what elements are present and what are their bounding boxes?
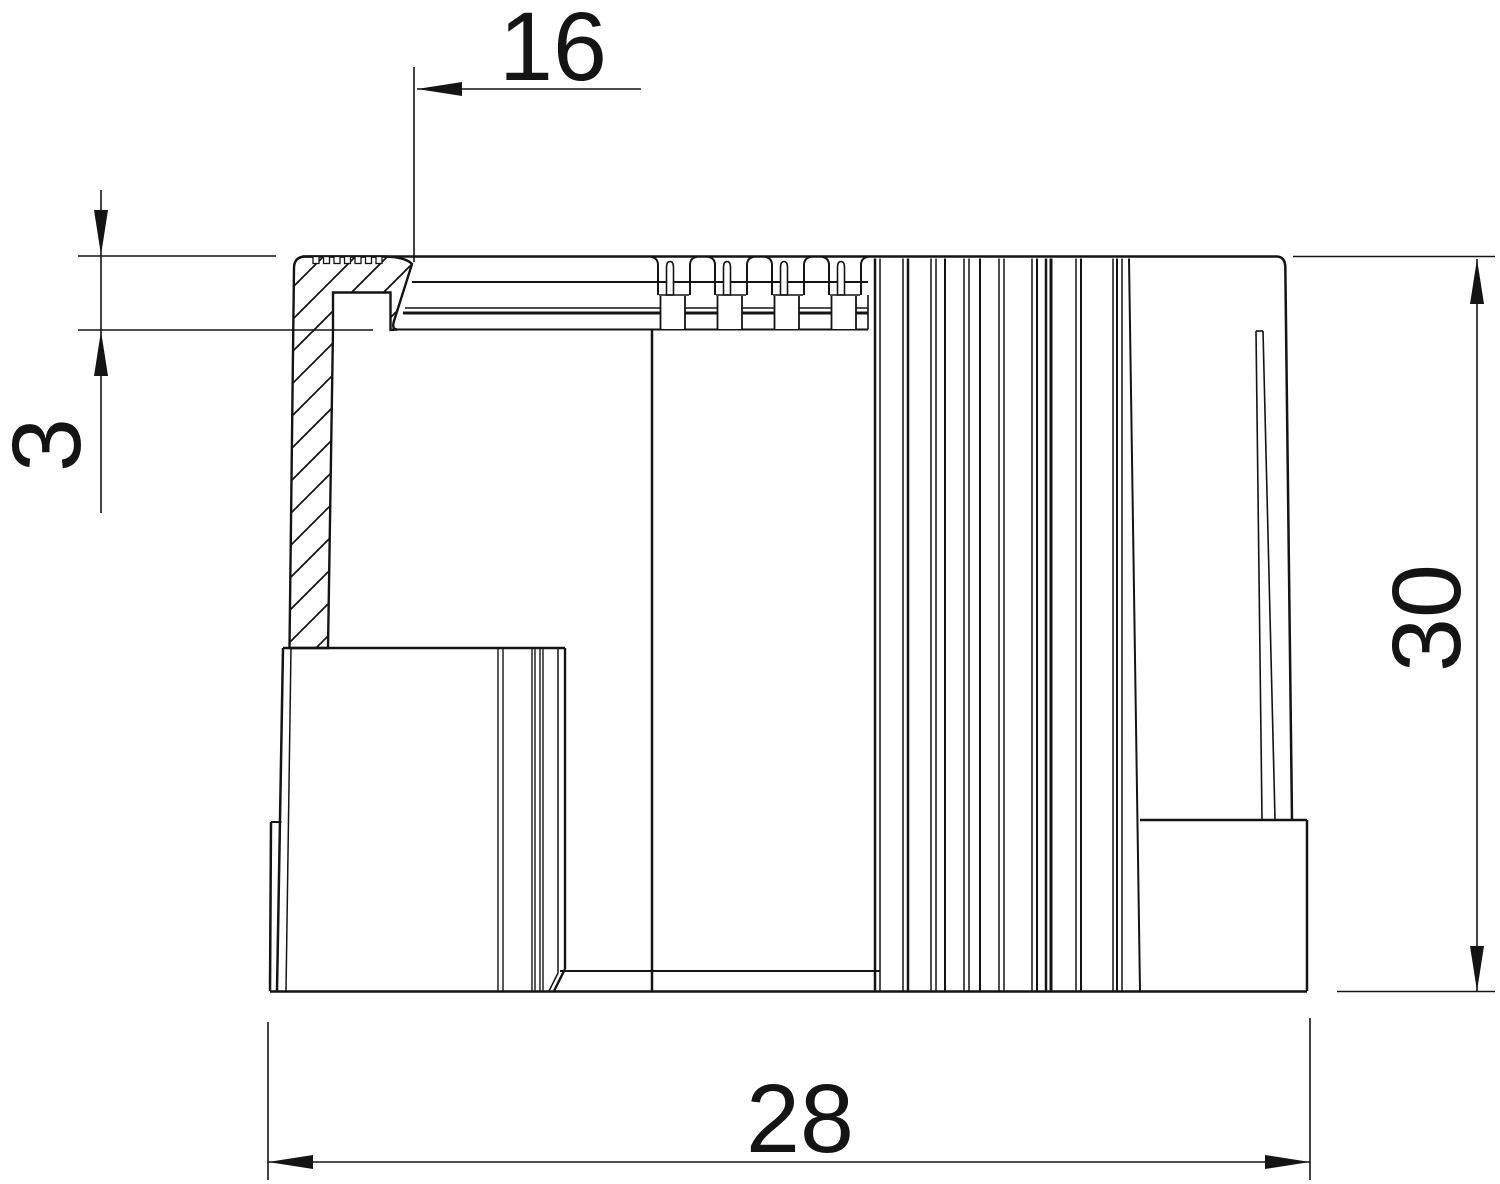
arrowhead-down-icon <box>1470 946 1484 991</box>
arrowhead-up-icon <box>94 331 108 376</box>
dimension-top-16: 16 <box>414 0 641 262</box>
drawing-canvas: 16 3 30 28 <box>0 0 1500 1184</box>
arrowhead-down-icon <box>94 210 108 255</box>
dimensions: 16 3 30 28 <box>0 0 1495 1180</box>
slot-tower-partial <box>857 257 868 330</box>
arrowhead-left-icon <box>417 82 462 96</box>
dimension-label-3: 3 <box>0 418 101 472</box>
slot-tower <box>822 257 868 330</box>
bottom-edges <box>270 971 1307 992</box>
slot-tower <box>765 257 811 330</box>
dimension-label-16: 16 <box>499 0 607 101</box>
castellation-slots <box>651 257 868 330</box>
right-body <box>1256 266 1292 820</box>
dimension-label-28: 28 <box>746 1064 854 1173</box>
slot-tower <box>708 257 754 330</box>
arrowhead-left-icon <box>268 1155 313 1169</box>
arrowhead-up-icon <box>1470 259 1484 304</box>
arrowhead-right-icon <box>1265 1155 1310 1169</box>
right-foot <box>1140 820 1307 991</box>
dimension-left-3: 3 <box>0 190 373 513</box>
slot-tower <box>651 257 697 330</box>
technical-drawing: 16 3 30 28 <box>0 0 1500 1184</box>
part-section <box>0 220 1307 992</box>
rib-lines <box>875 259 1140 992</box>
dimension-right-30: 30 <box>1293 257 1495 992</box>
knurl-serrations <box>313 257 382 264</box>
top-edge <box>302 257 1285 267</box>
dimension-label-30: 30 <box>1372 564 1481 672</box>
dimension-bottom-28: 28 <box>268 1018 1310 1180</box>
left-foot <box>270 648 565 991</box>
